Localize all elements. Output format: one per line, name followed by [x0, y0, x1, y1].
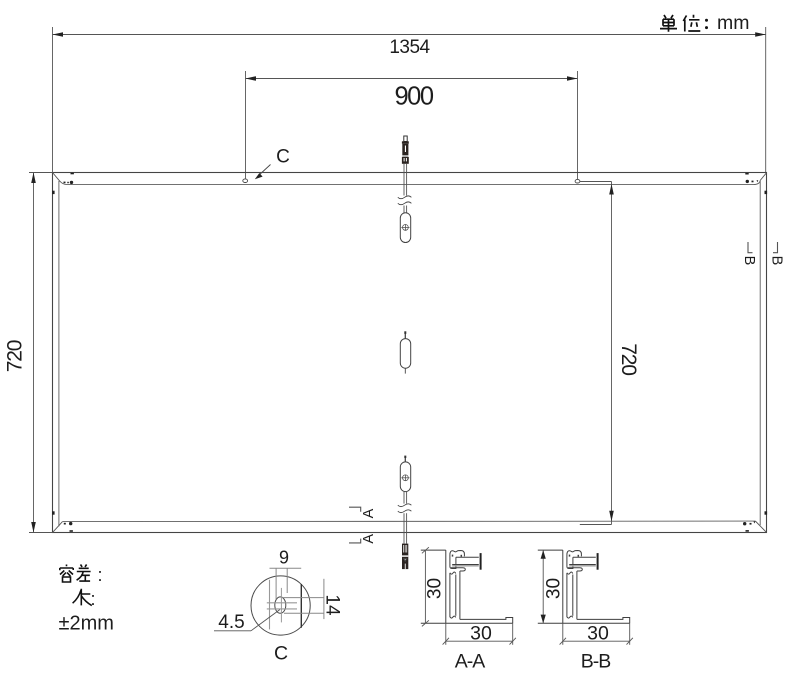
svg-text:A: A [361, 508, 377, 518]
svg-text:B: B [768, 256, 784, 266]
svg-text:14: 14 [322, 594, 343, 616]
svg-text:4.5: 4.5 [218, 612, 244, 633]
svg-text:9: 9 [279, 548, 289, 568]
svg-text:30: 30 [544, 578, 565, 599]
svg-text:A: A [361, 534, 377, 544]
svg-text:720: 720 [617, 343, 640, 375]
svg-text:30: 30 [470, 622, 492, 644]
svg-text:30: 30 [587, 622, 609, 644]
svg-text:900: 900 [394, 83, 433, 111]
svg-text:1354: 1354 [389, 37, 430, 58]
svg-text:B-B: B-B [581, 650, 611, 672]
svg-text:720: 720 [4, 340, 27, 372]
svg-text:30: 30 [425, 578, 446, 599]
svg-text::: : [98, 565, 103, 585]
svg-text:mm: mm [717, 12, 750, 34]
svg-text:C: C [276, 147, 290, 168]
svg-text:A-A: A-A [455, 650, 486, 672]
svg-text::: : [91, 589, 96, 609]
svg-text:B: B [741, 256, 757, 266]
svg-text:±2mm: ±2mm [59, 613, 114, 635]
svg-text:C: C [274, 643, 288, 665]
